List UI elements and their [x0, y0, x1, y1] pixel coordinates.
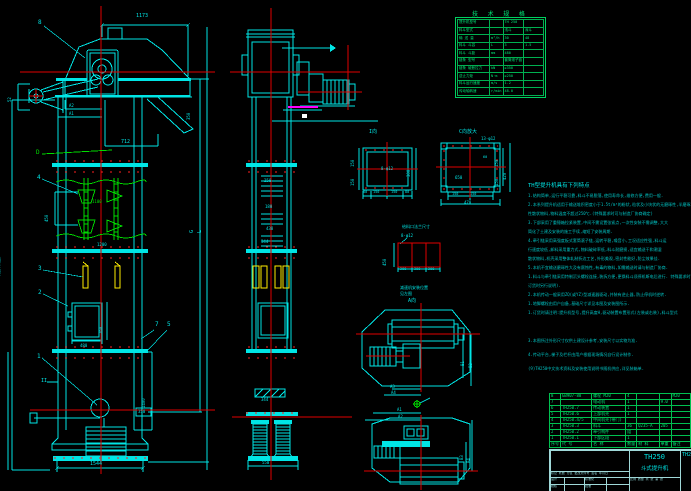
dim-label: 8: [38, 20, 42, 26]
note-line: 3.本图所注外形尺寸仅供土建设计参考,安装尺寸以实物为准.: [528, 338, 691, 352]
dim-label: 1100: [92, 200, 102, 204]
dim-label: 8-φ12: [401, 234, 413, 238]
note-line: 1.料斗与牵引链采用特制沉头螺栓连接,装拆方便,更换料斗须停机断电后进行. 特殊…: [528, 274, 691, 283]
dim-label: 712: [121, 140, 130, 145]
dim-label: 420: [503, 173, 507, 180]
table-cell: 备注: [671, 442, 690, 448]
table-cell: m³/h: [490, 35, 504, 43]
notes-lines: 1.结构简单,运行平稳可靠,料斗不易脱落,使用寿命长,维修方便,费用一般.2.本…: [528, 193, 691, 319]
dim-label: D: [36, 150, 40, 156]
dim-label: 1400: [142, 398, 146, 408]
bolt-marks: [54, 146, 498, 458]
dim-label: 8-φ12: [381, 167, 393, 171]
data-table: 8GB907-88螺栓 M204M207电动机19.06TH250.7传动装置1…: [549, 393, 691, 448]
notes-extra-lines: 3.本图所注外形尺寸仅供土建设计参考,安装尺寸以实物为准.4.传动平台,梯子及栏…: [528, 338, 691, 380]
table-cell: 48.0: [503, 88, 524, 96]
dim-label: A3: [390, 385, 395, 389]
dim-label: 80: [405, 191, 409, 195]
sig-cell: [606, 484, 630, 491]
dim-label: 250: [264, 179, 271, 183]
table-cell: 深斗: [524, 27, 544, 35]
dim-label: 5: [167, 322, 171, 328]
dim-label: 180: [265, 205, 272, 209]
dim-label: 350: [187, 113, 191, 120]
dim-label: A向: [408, 299, 416, 304]
dim-label: B2: [469, 363, 473, 368]
note-line: 2.本系列提升机适用于输送堆积密度小于1.5t/m³的粉状,粒状及小块状的无磨琢…: [528, 202, 691, 211]
table-cell: [524, 65, 544, 73]
table-cell: 浅斗: [503, 27, 524, 35]
table-cell: [490, 20, 504, 28]
table-cell: 1.5: [524, 42, 544, 50]
title-model: TH250: [630, 453, 679, 461]
table-cell: 料斗运行速度: [458, 80, 490, 88]
table-cell: [524, 20, 544, 28]
table-cell: 序号: [550, 442, 561, 448]
table-cell: TH 250: [503, 20, 524, 28]
dim-label: C向放大: [459, 130, 477, 135]
table-cell: 输 送 量: [458, 35, 490, 43]
dim-label: 52: [8, 97, 12, 102]
guide-rails: [83, 262, 289, 288]
table-cell: mm: [490, 50, 504, 58]
revision-empty: [550, 450, 630, 472]
note-line: 1.结构简单,运行平稳可靠,料斗不易脱落,使用寿命长,维修方便,费用一般.: [528, 193, 691, 202]
table-cell: 30: [503, 35, 524, 43]
table-cell: 名 称: [592, 442, 626, 448]
table-cell: [524, 88, 544, 96]
table-cell: 480: [503, 50, 524, 58]
table-cell: 3: [503, 42, 524, 50]
dim-label: 150: [495, 160, 499, 167]
dim-label: 300: [414, 268, 420, 272]
table-cell: 传动轴转速: [458, 88, 490, 96]
note-line: 散状物料,机壳采用整体轧制折边工艺,外形美观,密封性能好,防尘效果佳.: [528, 256, 691, 265]
dim-label: G: [190, 230, 195, 233]
note-line: 4.传动平台,梯子及栏杆由用户根据现场情况自行设计制作.: [528, 352, 691, 366]
dim-label: 1333: [0, 414, 1, 424]
table-cell: 料斗型式: [458, 27, 490, 35]
table-cell: 代 号: [561, 442, 592, 448]
table-cell: 套筒滚子链: [503, 57, 524, 65]
dim-label: 550: [262, 461, 269, 465]
table-cell: 提升机型号: [458, 20, 490, 28]
dim-label: 450: [383, 259, 387, 266]
dim-label: 1173: [136, 14, 148, 19]
table-cell: N·m: [490, 73, 504, 81]
dim-label: B3: [460, 455, 464, 460]
dim-label: 150: [470, 193, 476, 197]
dim-label: B4: [467, 458, 471, 463]
table-cell: kN: [490, 65, 504, 73]
data-table: 提升机型号TH 250料斗型式浅斗深斗输 送 量m³/h3048料斗 斗容L31…: [457, 19, 544, 96]
notes-block: TH型提升机具有下列特点 1.结构简单,运行平稳可靠,料斗不易脱落,使用寿命长,…: [528, 181, 691, 319]
dim-label: 80: [363, 191, 367, 195]
dim-label: 470: [464, 201, 471, 205]
dim-label: 438: [266, 227, 273, 231]
table-cell: 单重: [659, 442, 671, 448]
dim-label: 4: [37, 175, 41, 181]
table-cell: [490, 57, 504, 65]
centerlines: [20, 6, 506, 490]
dim-label: A4: [391, 391, 396, 395]
dim-label: 200: [400, 268, 406, 272]
table-cell: 链条 破断拉力: [458, 65, 490, 73]
dim-label: 2: [38, 290, 42, 296]
table-cell: [490, 27, 504, 35]
dim-label: A2: [69, 104, 74, 108]
dim-label: I向: [369, 130, 377, 135]
dim-label: L: [198, 230, 203, 233]
table-cell: ≥350: [503, 65, 524, 73]
table-cell: [524, 80, 544, 88]
dim-label: 3: [38, 266, 42, 272]
table-cell: [524, 50, 544, 58]
notes-title: TH型提升机具有下列特点: [528, 181, 691, 189]
dim-label: 760: [99, 327, 103, 334]
table-cell: 料斗 斗距: [458, 50, 490, 58]
sig-check: 校核: [550, 484, 565, 491]
cad-drawing-sheet: 1173852A2A1712350D4450110012003276048075…: [0, 0, 691, 491]
flange-bands: [52, 44, 430, 461]
note-line: 1.订货时请注明:提升机型号,提升高度H,驱动装置布置形式(左装或右装),料斗型…: [528, 310, 691, 319]
dim-label: 450: [45, 215, 49, 222]
note-line: (9)TH250中文技术资料及安装使用说明书随机供应,详见装箱单.: [528, 366, 691, 380]
table-cell: m/s: [490, 80, 504, 88]
dim-label: 350: [138, 410, 145, 414]
dim-label: 150: [351, 179, 355, 186]
dim-label: 150: [373, 191, 379, 195]
dim-label: 60: [483, 156, 487, 160]
table-cell: [524, 73, 544, 81]
notes-extra-block: 3.本图所注外形尺寸仅供土建设计参考,安装尺寸以实物为准.4.传动平台,梯子及栏…: [528, 338, 691, 380]
note-line: 1.地脚螺栓由用户自备,基础尺寸详见本图及安装图所示.: [528, 301, 691, 310]
dim-label: B1: [461, 361, 465, 366]
table-cell: 中间机壳(带门): [592, 418, 626, 424]
dim-label: H(提升高度): [0, 256, 1, 279]
note-line: 性散状物料,物料温度不超过250℃.(特殊要求时可与制造厂协商确定): [528, 211, 691, 220]
table-cell: [524, 57, 544, 65]
dim-label: 1: [37, 354, 41, 360]
dim-label: 给料口法兰尺寸: [402, 225, 430, 229]
dim-label: 7: [155, 322, 159, 328]
dim-label: 150: [351, 160, 355, 167]
note-line: 订货时另行说明).: [528, 283, 691, 292]
dim-label: 650: [455, 176, 462, 180]
note-line: 3.下部采用了重锤箱拉紧装置,中间不需设置张紧点,一次性安装不需调整,大大: [528, 220, 691, 229]
dim-label: A1: [397, 408, 402, 412]
dim-label: 150: [495, 179, 499, 186]
spec-table: 提升机型号TH 250料斗型式浅斗深斗输 送 量m³/h3048料斗 斗容L31…: [455, 17, 546, 98]
dim-label: 200: [428, 268, 434, 272]
table-cell: 48: [524, 35, 544, 43]
table-cell: 链条 型号: [458, 57, 490, 65]
table-cell: L: [490, 42, 504, 50]
note-line: 简化了土建及安装的施工手续,缩短了安装周期.: [528, 229, 691, 238]
note-line: 2.本机传动一般采用ZQ(或YZ)型减速器驱动,并装有逆止器,防止停机时逆转.: [528, 292, 691, 301]
dim-label: 减速机安装位置: [400, 286, 428, 290]
dim-label: II: [41, 379, 47, 384]
title-product: 斗式提升机: [628, 464, 681, 472]
note-line: 行速度较低,卸料采用重力式,物料破碎率低,料斗耐磨损,适宜输送干和潮湿: [528, 247, 691, 256]
dim-label: 见左图: [400, 292, 412, 296]
parts-list-table: 8GB907-88螺栓 M204M207电动机19.06TH250.7传动装置1…: [549, 393, 691, 448]
dim-label: 150: [391, 191, 397, 195]
table-cell: 1.2: [503, 80, 524, 88]
dim-label: 344: [261, 398, 268, 402]
dim-label: 150: [452, 193, 458, 197]
sheet-row: 比例 质量 共 张 第 张: [629, 477, 681, 491]
dim-label: A1: [69, 112, 74, 116]
table-cell: 数量: [626, 442, 637, 448]
title-block: 标记 处数 分区 更改文件号 签名 年月日 设计 标准化 校核 批准 比例 质量…: [549, 449, 691, 491]
dim-label: 300: [407, 170, 411, 177]
table-cell: r/min: [490, 88, 504, 96]
table-cell: 料斗 斗容: [458, 42, 490, 50]
dim-label: 1544: [90, 462, 102, 467]
sig-cell: [564, 484, 585, 491]
note-line: 5.本机不宜输送磨琢性大及有腐蚀性,有毒的物料,如需输送时请与制造厂协商.: [528, 265, 691, 274]
dim-label: A2: [398, 415, 403, 419]
sig-approve: 批准: [584, 484, 607, 491]
title-drawing-no: TH250: [682, 452, 691, 458]
dim-label: 344: [261, 240, 268, 244]
table-cell: 材 料: [637, 442, 659, 448]
dim-label: 1200: [97, 243, 107, 247]
dim-label: 480: [80, 344, 87, 348]
table-cell: 逆止力矩: [458, 73, 490, 81]
table-cell: ≥250: [503, 73, 524, 81]
note-line: 4.牵引链采用高强度板式套筒滚子链,运转平稳,噪音小,工况适应性强,料斗运: [528, 238, 691, 247]
dim-label: 13-φ12: [481, 137, 495, 141]
